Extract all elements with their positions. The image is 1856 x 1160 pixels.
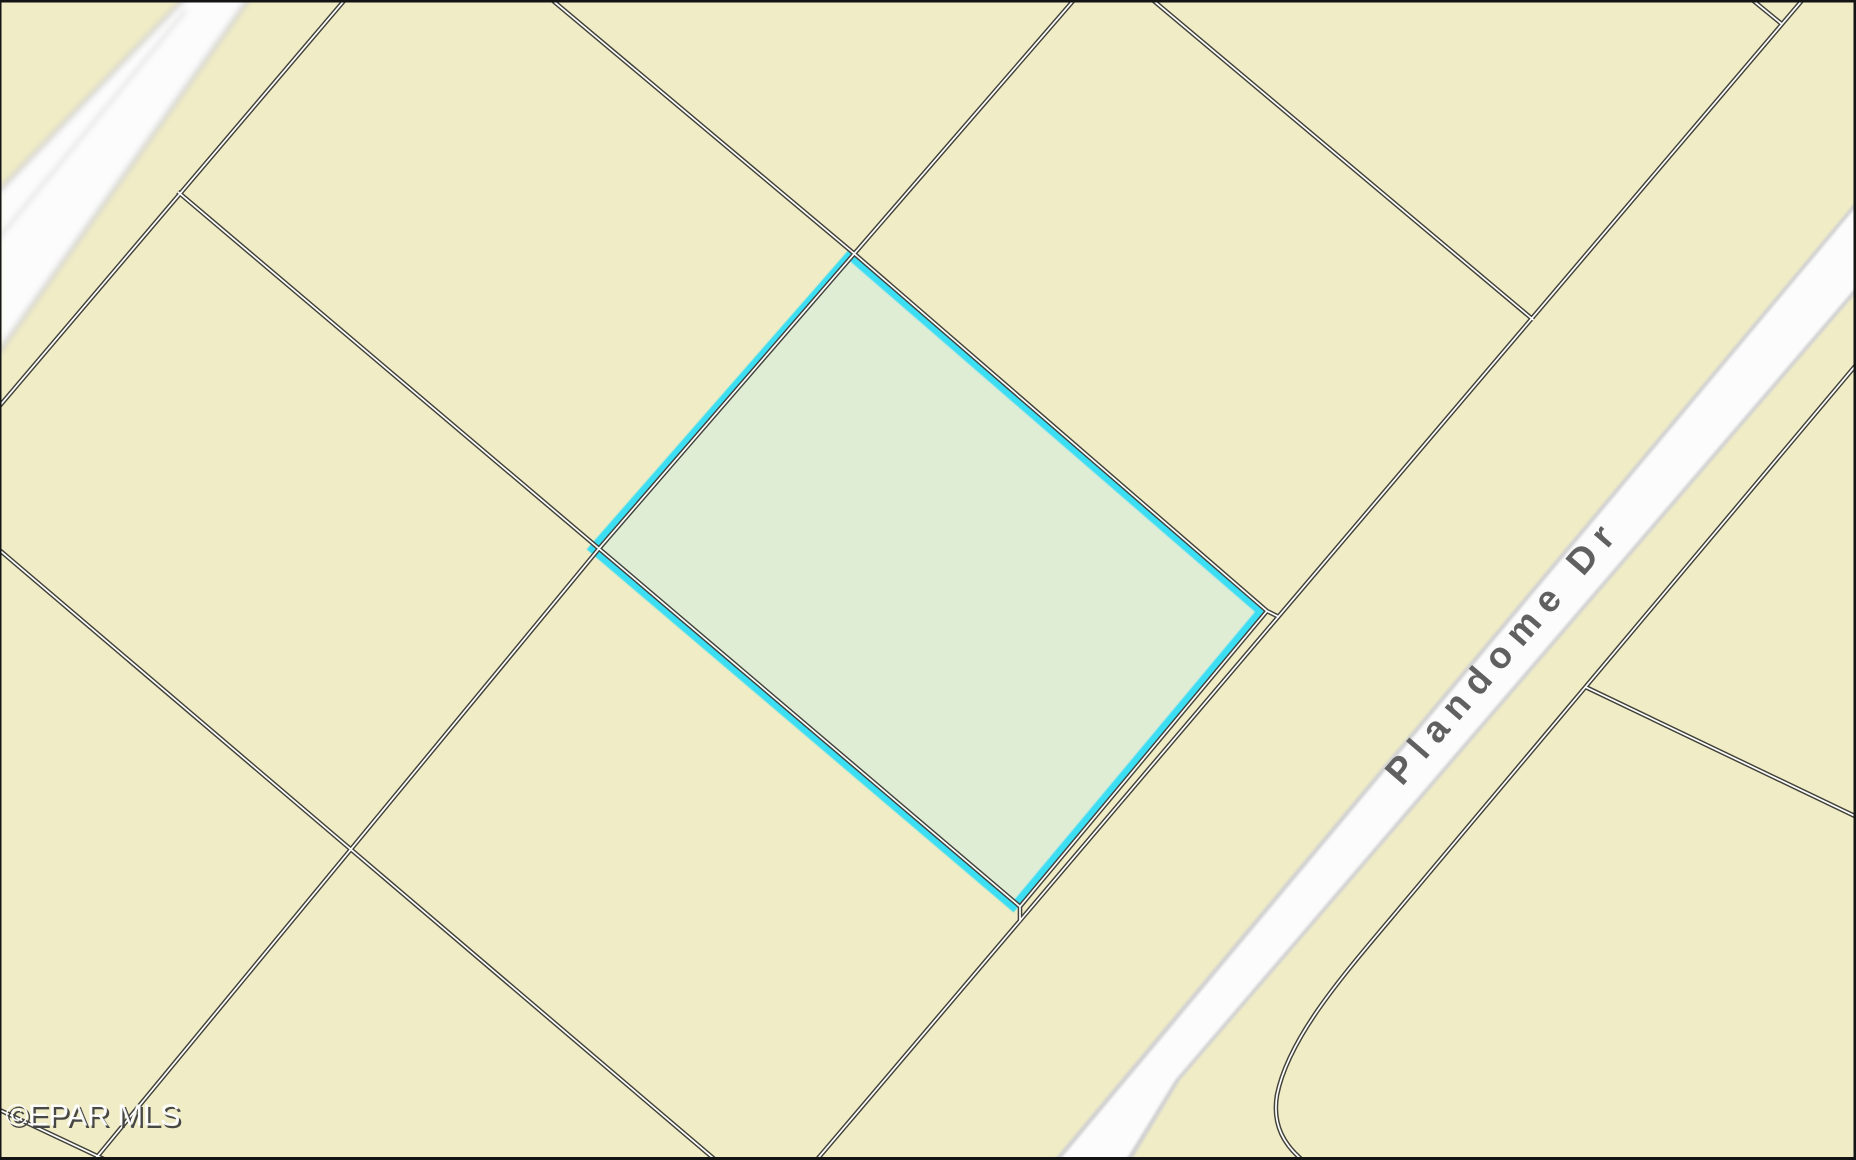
- svg-text:©EPAR MLS: ©EPAR MLS: [6, 1097, 181, 1132]
